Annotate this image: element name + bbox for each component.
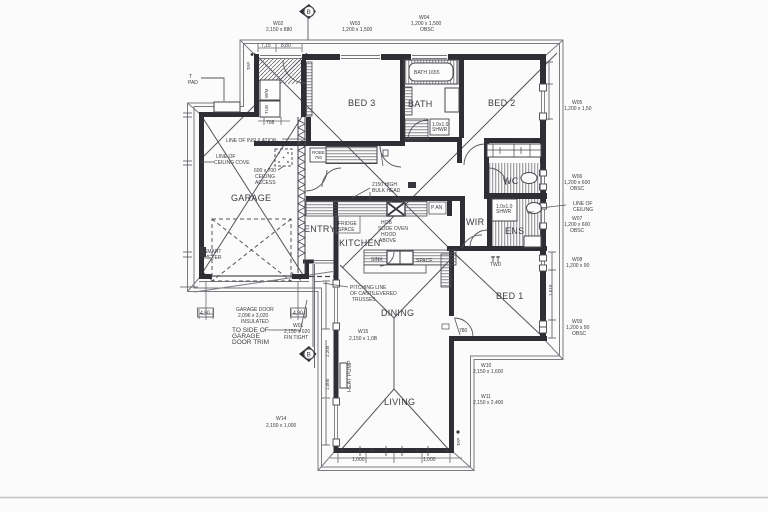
svg-text:SINK: SINK [371, 257, 383, 263]
svg-text:DOOR TRIM: DOOR TRIM [232, 339, 269, 346]
svg-text:8,80: 8,80 [281, 43, 291, 49]
svg-text:SPACE: SPACE [416, 258, 433, 264]
svg-text:1,000: 1,000 [352, 457, 365, 463]
svg-text:W14: W14 [276, 416, 287, 422]
svg-text:INSULATED: INSULATED [241, 319, 269, 325]
svg-text:2,150 x 2,400: 2,150 x 2,400 [473, 400, 504, 406]
svg-text:ACCESS: ACCESS [255, 180, 276, 186]
svg-text:708: 708 [266, 120, 275, 126]
svg-text:7,15: 7,15 [261, 43, 271, 49]
svg-text:PAD: PAD [188, 80, 198, 86]
svg-text:4,90: 4,90 [293, 311, 303, 317]
svg-text:ABOVE: ABOVE [379, 238, 397, 244]
svg-text:FIN TIGHT: FIN TIGHT [284, 335, 308, 341]
svg-text:GARAGE: GARAGE [231, 193, 271, 203]
svg-text:4,90: 4,90 [200, 311, 210, 317]
svg-text:2,150 x 1,0B: 2,150 x 1,0B [349, 336, 378, 342]
svg-text:750: 750 [315, 155, 323, 160]
svg-text:ENS: ENS [505, 226, 524, 236]
svg-text:P AN: P AN [431, 205, 443, 211]
svg-text:OBSC: OBSC [420, 27, 435, 33]
svg-text:780: 780 [459, 328, 468, 334]
svg-text:1,610: 1,610 [548, 284, 553, 296]
svg-text:TUB: TUB [264, 105, 269, 114]
svg-text:2,200: 2,200 [325, 345, 330, 357]
svg-text:W15: W15 [358, 329, 369, 335]
svg-text:2,150 x 880: 2,150 x 880 [266, 27, 292, 33]
svg-text:OBSC: OBSC [572, 331, 587, 337]
svg-text:1,000: 1,000 [325, 378, 330, 390]
svg-text:BULK HEAD: BULK HEAD [372, 188, 401, 194]
svg-text:B: B [307, 352, 311, 359]
svg-text:SHWR: SHWR [432, 127, 448, 133]
svg-text:B: B [307, 9, 311, 16]
svg-text:METER: METER [204, 255, 222, 261]
svg-text:2,150 x 1,600: 2,150 x 1,600 [473, 369, 504, 375]
svg-text:BED 3: BED 3 [348, 98, 376, 108]
svg-text:TWD: TWD [490, 262, 502, 268]
svg-text:WIR: WIR [466, 217, 485, 227]
svg-text:KITCHEN: KITCHEN [339, 238, 381, 248]
svg-text:CEILING: CEILING [573, 207, 593, 213]
svg-text:1,200 x 1,500: 1,200 x 1,500 [342, 27, 373, 33]
svg-text:BED 1: BED 1 [496, 291, 524, 301]
svg-text:BATH 1655: BATH 1655 [414, 70, 440, 76]
svg-text:SHWR: SHWR [496, 209, 512, 215]
svg-text:W/M: W/M [264, 89, 269, 98]
svg-text:1,200 x 90: 1,200 x 90 [566, 263, 590, 269]
svg-text:CEILING COVE: CEILING COVE [214, 160, 250, 166]
svg-text:WC: WC [527, 210, 535, 215]
svg-text:LIVING: LIVING [384, 397, 415, 407]
svg-text:LINE OF INSULATION: LINE OF INSULATION [226, 138, 277, 144]
svg-text:BED 2: BED 2 [488, 98, 516, 108]
svg-text:TAP: TAP [246, 62, 251, 70]
svg-text:2 /4/0: 2 /4/0 [519, 138, 532, 144]
svg-text:TAP: TAP [456, 438, 461, 446]
svg-text:WC: WC [503, 176, 519, 186]
svg-text:ENTRY: ENTRY [304, 224, 336, 234]
svg-text:HEAT PUMP: HEAT PUMP [347, 360, 353, 392]
svg-text:BATH: BATH [408, 99, 433, 109]
svg-text:TRUSSES: TRUSSES [352, 297, 376, 303]
svg-text:DINING: DINING [381, 308, 414, 318]
svg-text:OBSC: OBSC [570, 228, 585, 234]
svg-text:SPACE: SPACE [338, 227, 355, 233]
svg-text:2,150 x 1,000: 2,150 x 1,000 [266, 423, 297, 429]
svg-text:1,200 x 1,50: 1,200 x 1,50 [564, 106, 592, 112]
svg-text:1,000: 1,000 [423, 457, 436, 463]
svg-text:OBSC: OBSC [570, 186, 585, 192]
